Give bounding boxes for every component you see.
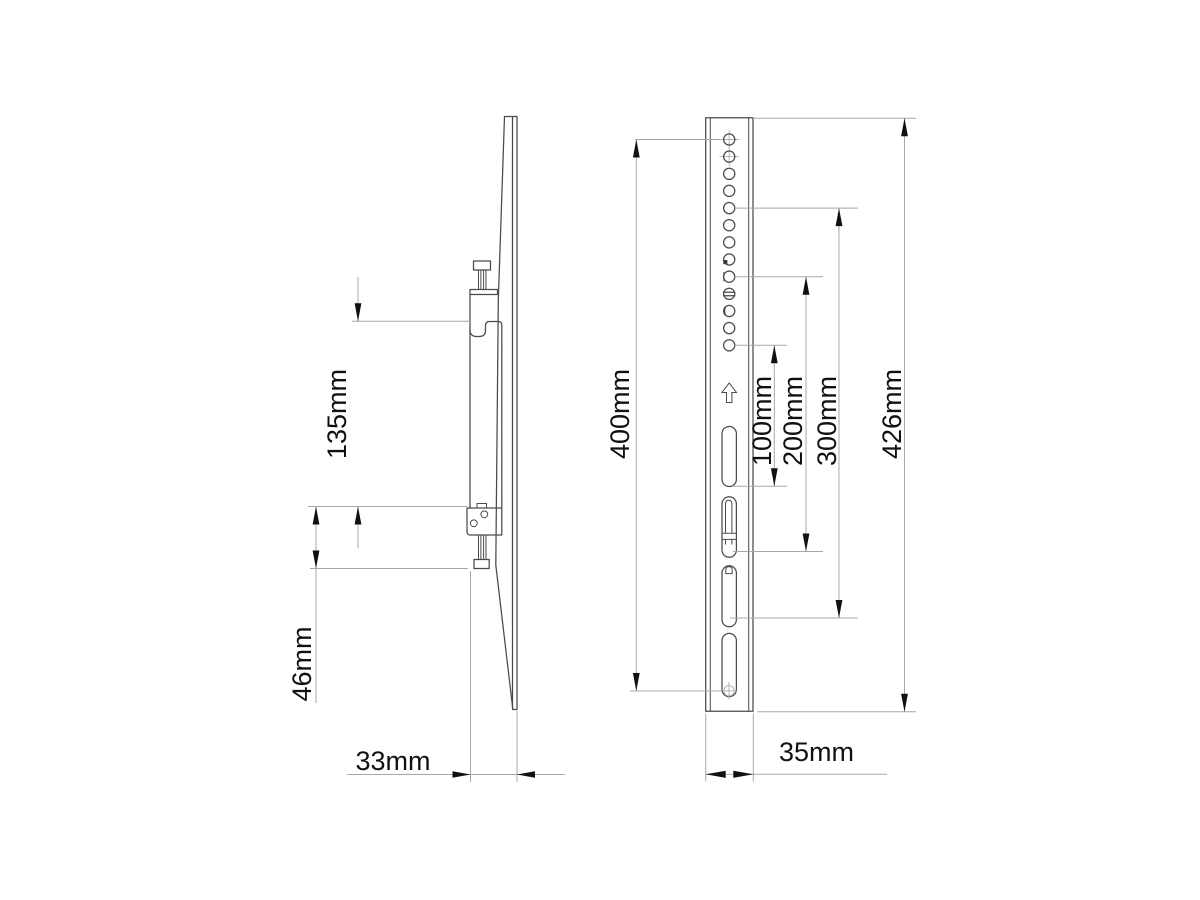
- dimension-label: 200mm: [778, 376, 808, 466]
- dimension-label: 400mm: [605, 369, 635, 459]
- arrowhead-left-icon: [706, 771, 726, 778]
- dimension-lines: [630, 140, 724, 692]
- mounting-rail: [706, 118, 753, 712]
- mounting-hole: [724, 323, 735, 334]
- screw-slot-mark: [724, 292, 735, 296]
- dimension-33mm: 33mm: [347, 571, 565, 782]
- arrowhead-right-icon: [453, 771, 471, 778]
- top-screw-shaft: [479, 270, 487, 290]
- bracket-technical-drawing: 135mm 46mm 33mm: [0, 0, 1200, 900]
- dimension-label: 426mm: [877, 369, 907, 459]
- slot: [722, 497, 736, 558]
- arrowhead-up-icon: [313, 507, 320, 525]
- block-hole: [470, 520, 477, 527]
- panel-outline: [505, 117, 518, 710]
- arrowhead-down-icon: [771, 468, 778, 486]
- arrowhead-down-icon: [355, 303, 362, 321]
- arrowhead-down-icon: [803, 534, 810, 552]
- hole-notch-mark: [723, 260, 727, 264]
- arrowhead-up-icon: [901, 118, 908, 136]
- panel-profile: [496, 117, 517, 710]
- mounting-hole: [724, 185, 735, 196]
- mounting-hole: [724, 305, 735, 316]
- mounting-hole: [724, 288, 735, 299]
- up-arrow-icon: [722, 383, 737, 403]
- mounting-hole: [724, 168, 735, 179]
- bottom-screw-head: [474, 560, 489, 569]
- dimension-35mm: 35mm: [706, 714, 887, 782]
- top-screw-head: [474, 261, 491, 270]
- arrowhead-down-icon: [901, 694, 908, 712]
- mounting-hole: [724, 237, 735, 248]
- mounting-hole: [724, 340, 735, 351]
- center-mark: [720, 130, 740, 167]
- slot: [722, 427, 736, 487]
- arrowhead-down-icon: [313, 551, 320, 569]
- dimension-label: 35mm: [779, 737, 854, 767]
- arrowhead-up-icon: [803, 277, 810, 295]
- dimension-135mm: 135mm: [308, 277, 470, 548]
- front-view: 400mm 100mm 200mm 300mm 426m: [605, 118, 916, 782]
- slot-screw-tip-detail: [726, 567, 732, 574]
- mounting-hole: [724, 271, 735, 282]
- arrowhead-up-icon: [633, 140, 640, 158]
- arrowhead-up-icon: [836, 208, 843, 226]
- top-hook-flange: [470, 290, 498, 295]
- mounting-hole: [724, 203, 735, 214]
- arrowhead-right-icon: [733, 771, 753, 778]
- arrowhead-down-icon: [633, 673, 640, 691]
- arrowhead-down-icon: [836, 600, 843, 618]
- dimension-label: 135mm: [322, 369, 352, 459]
- rail-outline: [706, 118, 753, 712]
- dimension-label: 46mm: [287, 626, 317, 701]
- mounting-hole: [724, 220, 735, 231]
- mounting-holes: [720, 130, 740, 351]
- dimension-label: 33mm: [355, 746, 430, 776]
- dimension-label: 100mm: [747, 376, 777, 466]
- arrowhead-up-icon: [355, 507, 362, 525]
- bottom-screw-shaft: [479, 535, 487, 560]
- rail-flange-lines: [710, 118, 748, 712]
- panel-front-edge: [496, 117, 513, 710]
- technical-drawing-page: 135mm 46mm 33mm: [0, 0, 1200, 900]
- dimension-46mm: 46mm: [287, 507, 468, 704]
- arrowhead-up-icon: [771, 345, 778, 363]
- arrowhead-left-icon: [517, 771, 535, 778]
- adjustment-slots: [721, 427, 738, 700]
- dimension-label: 300mm: [812, 376, 842, 466]
- side-view: 135mm 46mm 33mm: [287, 117, 565, 783]
- slot-screw-detail: [722, 500, 736, 544]
- dimension-lines: [310, 507, 468, 704]
- block-hole: [481, 511, 488, 518]
- block-top-tab: [477, 504, 487, 509]
